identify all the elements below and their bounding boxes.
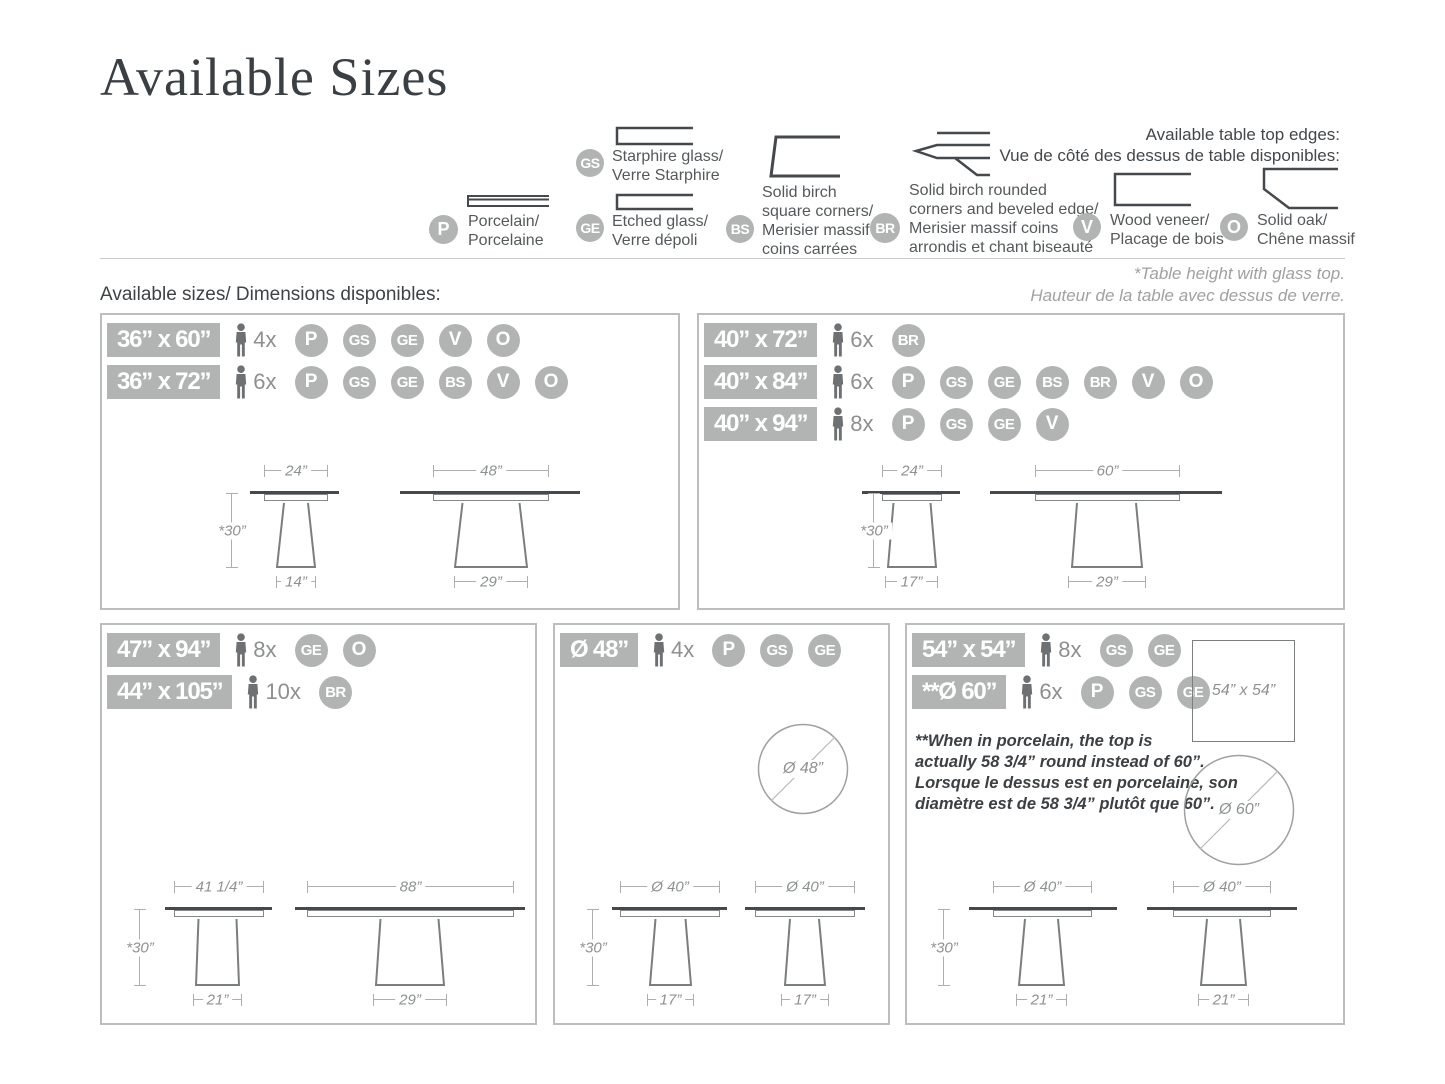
- label-line: arrondis et chant biseauté: [909, 238, 1098, 257]
- material-badge: GE: [988, 366, 1021, 399]
- note-line: Lorsque le dessus est en porcelaine, son: [915, 773, 1167, 794]
- dimension-height: *30”: [938, 909, 950, 986]
- size-row: 40” x 72” 6x BR: [704, 323, 1213, 357]
- apron: [1035, 494, 1180, 501]
- size-badge: 36” x 60”: [107, 323, 220, 357]
- material-badges: P GS GE V: [892, 408, 1069, 441]
- pedestal: [649, 918, 692, 987]
- size-badge: 47” x 94”: [107, 633, 220, 667]
- size-badge: **Ø 60”: [912, 675, 1006, 709]
- size-row: 47” x 94” 8x GE O: [107, 633, 376, 667]
- person-icon: [233, 633, 249, 667]
- material-badge-birch-rounded: BR: [870, 213, 900, 243]
- material-badges: P GS GE: [712, 634, 841, 667]
- size-rows: Ø 48” 4x P GS GE: [560, 633, 841, 667]
- seat-count: 8x: [850, 411, 873, 437]
- material-badge: P: [1081, 676, 1114, 709]
- size-rows: 54” x 54” 8x GS GE **Ø 60” 6x P GS GE: [912, 633, 1210, 709]
- person-icon: [245, 675, 261, 709]
- panel-36in-tables: 36” x 60” 4x P GS GE V O 36” x 72” 6x P …: [100, 313, 680, 610]
- person-icon: [233, 365, 249, 399]
- material-badge: O: [1180, 366, 1213, 399]
- material-badge: GE: [391, 324, 424, 357]
- dimension-height: *30”: [587, 909, 599, 986]
- size-row: 36” x 60” 4x P GS GE V O: [107, 323, 568, 357]
- dimension-top: 41 1/4”: [174, 881, 264, 893]
- material-badge: BS: [1036, 366, 1069, 399]
- dimension-base: 17”: [647, 994, 694, 1006]
- material-badge-veneer: V: [1073, 213, 1101, 241]
- material-badge: BR: [319, 676, 352, 709]
- material-badge: P: [295, 324, 328, 357]
- panel-40in-tables: 40” x 72” 6x BR 40” x 84” 6x P GS GE BS …: [697, 313, 1345, 610]
- material-badge: GS: [940, 408, 973, 441]
- material-badge: BS: [439, 366, 472, 399]
- table-side-diagram: Ø 40” 21”: [1147, 881, 1302, 1013]
- pedestal: [784, 918, 826, 987]
- label-line: corners and beveled edge/: [909, 200, 1098, 219]
- porcelain-edge-icon: [465, 194, 550, 208]
- table-side-diagram: Ø 40” 21” *30”: [937, 881, 1127, 1013]
- label-line: Solid birch: [762, 183, 873, 202]
- panel-round-48-table: Ø 48” 4x P GS GE Ø 48” Ø 40” 17” *30” Ø …: [553, 623, 890, 1025]
- apron: [993, 910, 1092, 917]
- note-line: **When in porcelain, the top is: [915, 731, 1167, 752]
- material-badges: P GS GE: [1081, 676, 1210, 709]
- seat-count: 8x: [253, 637, 276, 663]
- dimension-base: 21”: [1016, 994, 1067, 1006]
- material-badge: GE: [1148, 634, 1181, 667]
- table-side-diagram: 24” 17” *30”: [854, 465, 984, 595]
- dimension-base: 29”: [373, 994, 447, 1006]
- table-side-diagram: Ø 40” 17”: [740, 881, 870, 1013]
- dimension-height: *30”: [226, 493, 238, 568]
- dimension-base: 21”: [1198, 994, 1249, 1006]
- pedestal: [887, 502, 937, 569]
- glass-top-note: *Table height with glass top. Hauteur de…: [1030, 263, 1345, 307]
- etched-glass-edge-icon: [614, 193, 694, 212]
- label-line: Porcelain/: [468, 212, 544, 231]
- material-badges: GS GE: [1100, 634, 1181, 667]
- material-badge: GS: [1100, 634, 1133, 667]
- apron: [433, 494, 549, 501]
- pedestal: [375, 918, 445, 987]
- dimension-top: Ø 40”: [620, 881, 720, 893]
- pedestal: [1200, 918, 1247, 987]
- note-line: actually 58 3/4” round instead of 60”.: [915, 752, 1167, 773]
- table-side-diagram: 48” 29”: [400, 465, 580, 595]
- table-side-diagram: 24” 14” *30”: [192, 465, 352, 595]
- material-badges: P GS GE BS BR V O: [892, 366, 1213, 399]
- dimension-height: *30”: [134, 909, 146, 986]
- table-side-diagram: 41 1/4” 21” *30”: [122, 881, 287, 1013]
- material-badges: BR: [319, 676, 352, 709]
- apron: [1173, 910, 1271, 917]
- material-badge: GE: [391, 366, 424, 399]
- size-rows: 36” x 60” 4x P GS GE V O 36” x 72” 6x P …: [107, 323, 568, 399]
- label-line: Chêne massif: [1257, 230, 1355, 249]
- material-badge: GS: [940, 366, 973, 399]
- apron: [307, 910, 514, 917]
- dimension-top: 24”: [882, 465, 942, 477]
- person-icon: [830, 407, 846, 441]
- wood-veneer-edge-icon: [1111, 172, 1192, 208]
- material-badge: BR: [892, 324, 925, 357]
- material-badge: GS: [760, 634, 793, 667]
- size-badge: 40” x 94”: [704, 407, 817, 441]
- size-badge: 36” x 72”: [107, 365, 220, 399]
- material-badges: P GS GE BS V O: [295, 366, 568, 399]
- starphire-glass-edge-icon: [614, 126, 694, 147]
- material-badge-oak: O: [1220, 213, 1248, 241]
- apron: [620, 910, 720, 917]
- material-badge: GE: [988, 408, 1021, 441]
- pedestal: [195, 918, 240, 987]
- label-line: Merisier massif coins: [909, 219, 1098, 238]
- pedestal: [454, 502, 528, 569]
- porcelain-note: **When in porcelain, the top is actually…: [915, 731, 1167, 815]
- panel-47in-tables: 47” x 94” 8x GE O 44” x 105” 10x BR 41 1…: [100, 623, 537, 1025]
- material-badge: P: [892, 408, 925, 441]
- dimension-top: Ø 40”: [755, 881, 855, 893]
- material-badge: V: [439, 324, 472, 357]
- seat-count: 4x: [671, 637, 694, 663]
- label-line: Merisier massif: [762, 221, 873, 240]
- material-badge: P: [892, 366, 925, 399]
- dimension-base: 29”: [454, 576, 528, 588]
- note-line: *Table height with glass top.: [1030, 263, 1345, 285]
- size-row: Ø 48” 4x P GS GE: [560, 633, 841, 667]
- apron: [264, 494, 328, 501]
- person-icon: [1019, 675, 1035, 709]
- edges-heading-fr: Vue de côté des dessus de table disponib…: [999, 145, 1340, 166]
- size-rows: 40” x 72” 6x BR 40” x 84” 6x P GS GE BS …: [704, 323, 1213, 441]
- material-badge: V: [1132, 366, 1165, 399]
- material-badges: BR: [892, 324, 925, 357]
- etched-glass-label: Etched glass/ Verre dépoli: [612, 212, 708, 250]
- size-badge: 40” x 72”: [704, 323, 817, 357]
- size-row: 44” x 105” 10x BR: [107, 675, 376, 709]
- person-icon: [830, 365, 846, 399]
- material-badge: O: [487, 324, 520, 357]
- birch-rounded-label: Solid birch rounded corners and beveled …: [909, 181, 1098, 257]
- seat-count: 6x: [253, 369, 276, 395]
- seat-count: 6x: [850, 369, 873, 395]
- dimension-base: 29”: [1068, 576, 1146, 588]
- apron: [174, 910, 264, 917]
- starphire-glass-label: Starphire glass/ Verre Starphire: [612, 147, 723, 185]
- person-icon: [651, 633, 667, 667]
- page-title: Available Sizes: [100, 46, 448, 108]
- seat-count: 8x: [1058, 637, 1081, 663]
- seat-count: 10x: [265, 679, 300, 705]
- apron: [755, 910, 855, 917]
- solid-oak-edge-icon: [1257, 167, 1340, 211]
- seat-count: 4x: [253, 327, 276, 353]
- round-top-diagram: Ø 48”: [757, 723, 849, 815]
- apron: [882, 494, 942, 501]
- material-badge-etched: GE: [576, 214, 604, 242]
- label-line: coins carrées: [762, 240, 873, 259]
- material-badge: GS: [343, 324, 376, 357]
- material-badge: BR: [1084, 366, 1117, 399]
- material-badge: P: [712, 634, 745, 667]
- label-line: Solid birch rounded: [909, 181, 1098, 200]
- material-badge: O: [343, 634, 376, 667]
- material-badges: GE O: [295, 634, 376, 667]
- dimension-base: 14”: [276, 576, 316, 588]
- edges-heading: Available table top edges: Vue de côté d…: [999, 124, 1340, 166]
- porcelain-label: Porcelain/ Porcelaine: [468, 212, 544, 250]
- label-line: Solid oak/: [1257, 211, 1355, 230]
- note-line: diamètre est de 58 3/4” plutôt que 60”.: [915, 794, 1167, 815]
- material-badge: V: [487, 366, 520, 399]
- material-badge-starphire: GS: [576, 149, 604, 177]
- dimension-base: 17”: [781, 994, 829, 1006]
- available-sizes-heading: Available sizes/ Dimensions disponibles:: [100, 284, 441, 306]
- round-top-diagram: Ø 60”: [1183, 754, 1295, 866]
- square-top-diagram: 54” x 54”: [1192, 640, 1295, 742]
- dimension-height: *30”: [868, 493, 880, 568]
- table-side-diagram: 88” 29”: [295, 881, 525, 1013]
- material-badge: P: [295, 366, 328, 399]
- dimension-top: 60”: [1035, 465, 1180, 477]
- material-badge: V: [1036, 408, 1069, 441]
- size-row: **Ø 60” 6x P GS GE: [912, 675, 1210, 709]
- dimension-top: Ø 40”: [993, 881, 1092, 893]
- material-badge: GS: [343, 366, 376, 399]
- dimension-top: 88”: [307, 881, 514, 893]
- material-badge-birch-square: BS: [726, 215, 754, 243]
- size-badge: Ø 48”: [560, 633, 638, 667]
- label-line: Porcelaine: [468, 231, 544, 250]
- material-badge-porcelain: P: [429, 215, 458, 244]
- birch-rounded-edge-icon: [911, 130, 991, 178]
- birch-square-edge-icon: [766, 135, 841, 179]
- label-line: Verre dépoli: [612, 231, 708, 250]
- material-badge: GS: [1129, 676, 1162, 709]
- material-badge: GE: [808, 634, 841, 667]
- pedestal: [1071, 502, 1143, 569]
- label-line: Etched glass/: [612, 212, 708, 231]
- size-badge: 40” x 84”: [704, 365, 817, 399]
- edges-heading-en: Available table top edges:: [999, 124, 1340, 145]
- solid-oak-label: Solid oak/ Chêne massif: [1257, 211, 1355, 249]
- seat-count: 6x: [850, 327, 873, 353]
- dimension-top: 48”: [433, 465, 549, 477]
- label-line: square corners/: [762, 202, 873, 221]
- person-icon: [233, 323, 249, 357]
- table-side-diagram: Ø 40” 17” *30”: [575, 881, 735, 1013]
- material-badge: O: [535, 366, 568, 399]
- wood-veneer-label: Wood veneer/ Placage de bois: [1110, 211, 1224, 249]
- label-line: Wood veneer/: [1110, 211, 1224, 230]
- size-row: 40” x 94” 8x P GS GE V: [704, 407, 1213, 441]
- panel-54in-round-60-tables: 54” x 54” 8x GS GE **Ø 60” 6x P GS GE 54…: [905, 623, 1345, 1025]
- dimension-top: Ø 40”: [1173, 881, 1271, 893]
- label-line: Verre Starphire: [612, 166, 723, 185]
- pedestal: [1018, 918, 1065, 987]
- size-badge: 44” x 105”: [107, 675, 232, 709]
- seat-count: 6x: [1039, 679, 1062, 705]
- label-line: Starphire glass/: [612, 147, 723, 166]
- size-badge: 54” x 54”: [912, 633, 1025, 667]
- material-badges: P GS GE V O: [295, 324, 520, 357]
- material-badge: GE: [295, 634, 328, 667]
- table-side-diagram: 60” 29”: [990, 465, 1222, 595]
- dimension-top: 24”: [264, 465, 328, 477]
- dimension-base: 17”: [885, 576, 938, 588]
- size-row: 36” x 72” 6x P GS GE BS V O: [107, 365, 568, 399]
- size-row: 40” x 84” 6x P GS GE BS BR V O: [704, 365, 1213, 399]
- dimension-base: 21”: [193, 994, 242, 1006]
- note-line: Hauteur de la table avec dessus de verre…: [1030, 285, 1345, 307]
- size-row: 54” x 54” 8x GS GE: [912, 633, 1210, 667]
- size-rows: 47” x 94” 8x GE O 44” x 105” 10x BR: [107, 633, 376, 709]
- section-divider: [100, 258, 1345, 259]
- pedestal: [276, 502, 316, 569]
- birch-square-label: Solid birch square corners/ Merisier mas…: [762, 183, 873, 259]
- label-line: Placage de bois: [1110, 230, 1224, 249]
- person-icon: [1038, 633, 1054, 667]
- person-icon: [830, 323, 846, 357]
